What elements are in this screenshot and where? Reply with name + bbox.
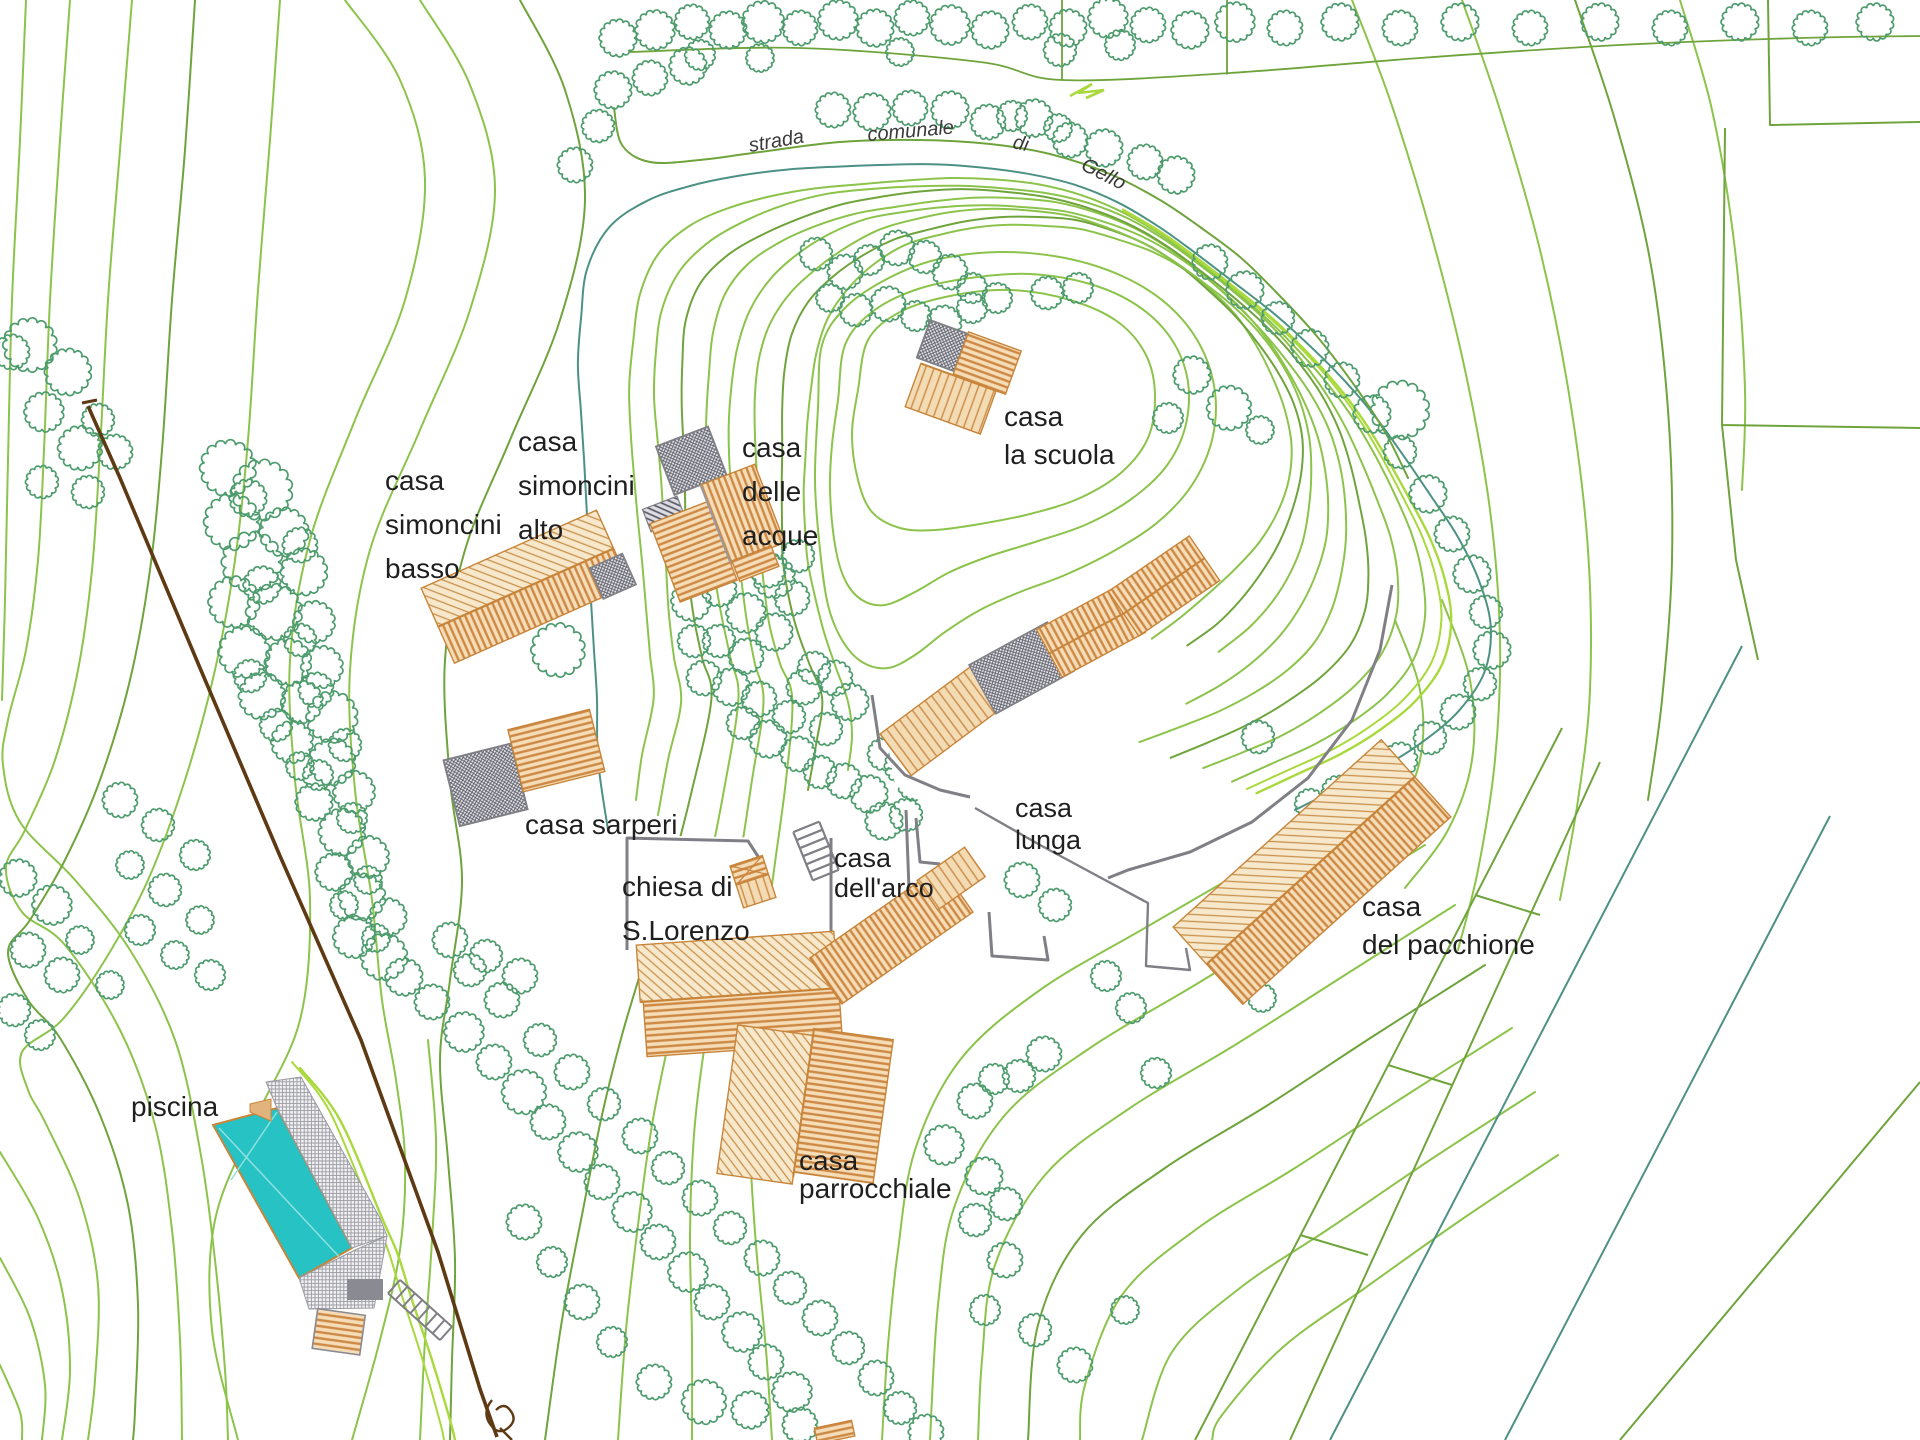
svg-text:casa: casa	[742, 432, 802, 463]
svg-text:casa: casa	[834, 843, 892, 873]
svg-text:simoncini: simoncini	[385, 509, 502, 540]
svg-text:casa: casa	[1004, 401, 1064, 432]
svg-text:casa sarperi: casa sarperi	[525, 809, 678, 840]
svg-text:casa: casa	[799, 1145, 859, 1176]
svg-text:la scuola: la scuola	[1004, 439, 1115, 470]
svg-text:S.Lorenzo: S.Lorenzo	[622, 915, 750, 946]
svg-text:piscina: piscina	[131, 1091, 219, 1122]
svg-text:parrocchiale: parrocchiale	[799, 1173, 952, 1204]
svg-text:dell'arco: dell'arco	[834, 873, 934, 903]
svg-text:casa: casa	[518, 426, 578, 457]
svg-text:chiesa di: chiesa di	[622, 871, 733, 902]
svg-text:del pacchione: del pacchione	[1362, 929, 1535, 960]
svg-text:alto: alto	[518, 514, 563, 545]
svg-text:simoncini: simoncini	[518, 470, 635, 501]
svg-text:casa: casa	[1015, 793, 1073, 823]
svg-text:delle: delle	[742, 476, 801, 507]
svg-text:lunga: lunga	[1015, 825, 1082, 855]
svg-text:basso: basso	[385, 553, 460, 584]
svg-text:acque: acque	[742, 520, 818, 551]
svg-text:casa: casa	[1362, 891, 1422, 922]
svg-text:casa: casa	[385, 465, 445, 496]
